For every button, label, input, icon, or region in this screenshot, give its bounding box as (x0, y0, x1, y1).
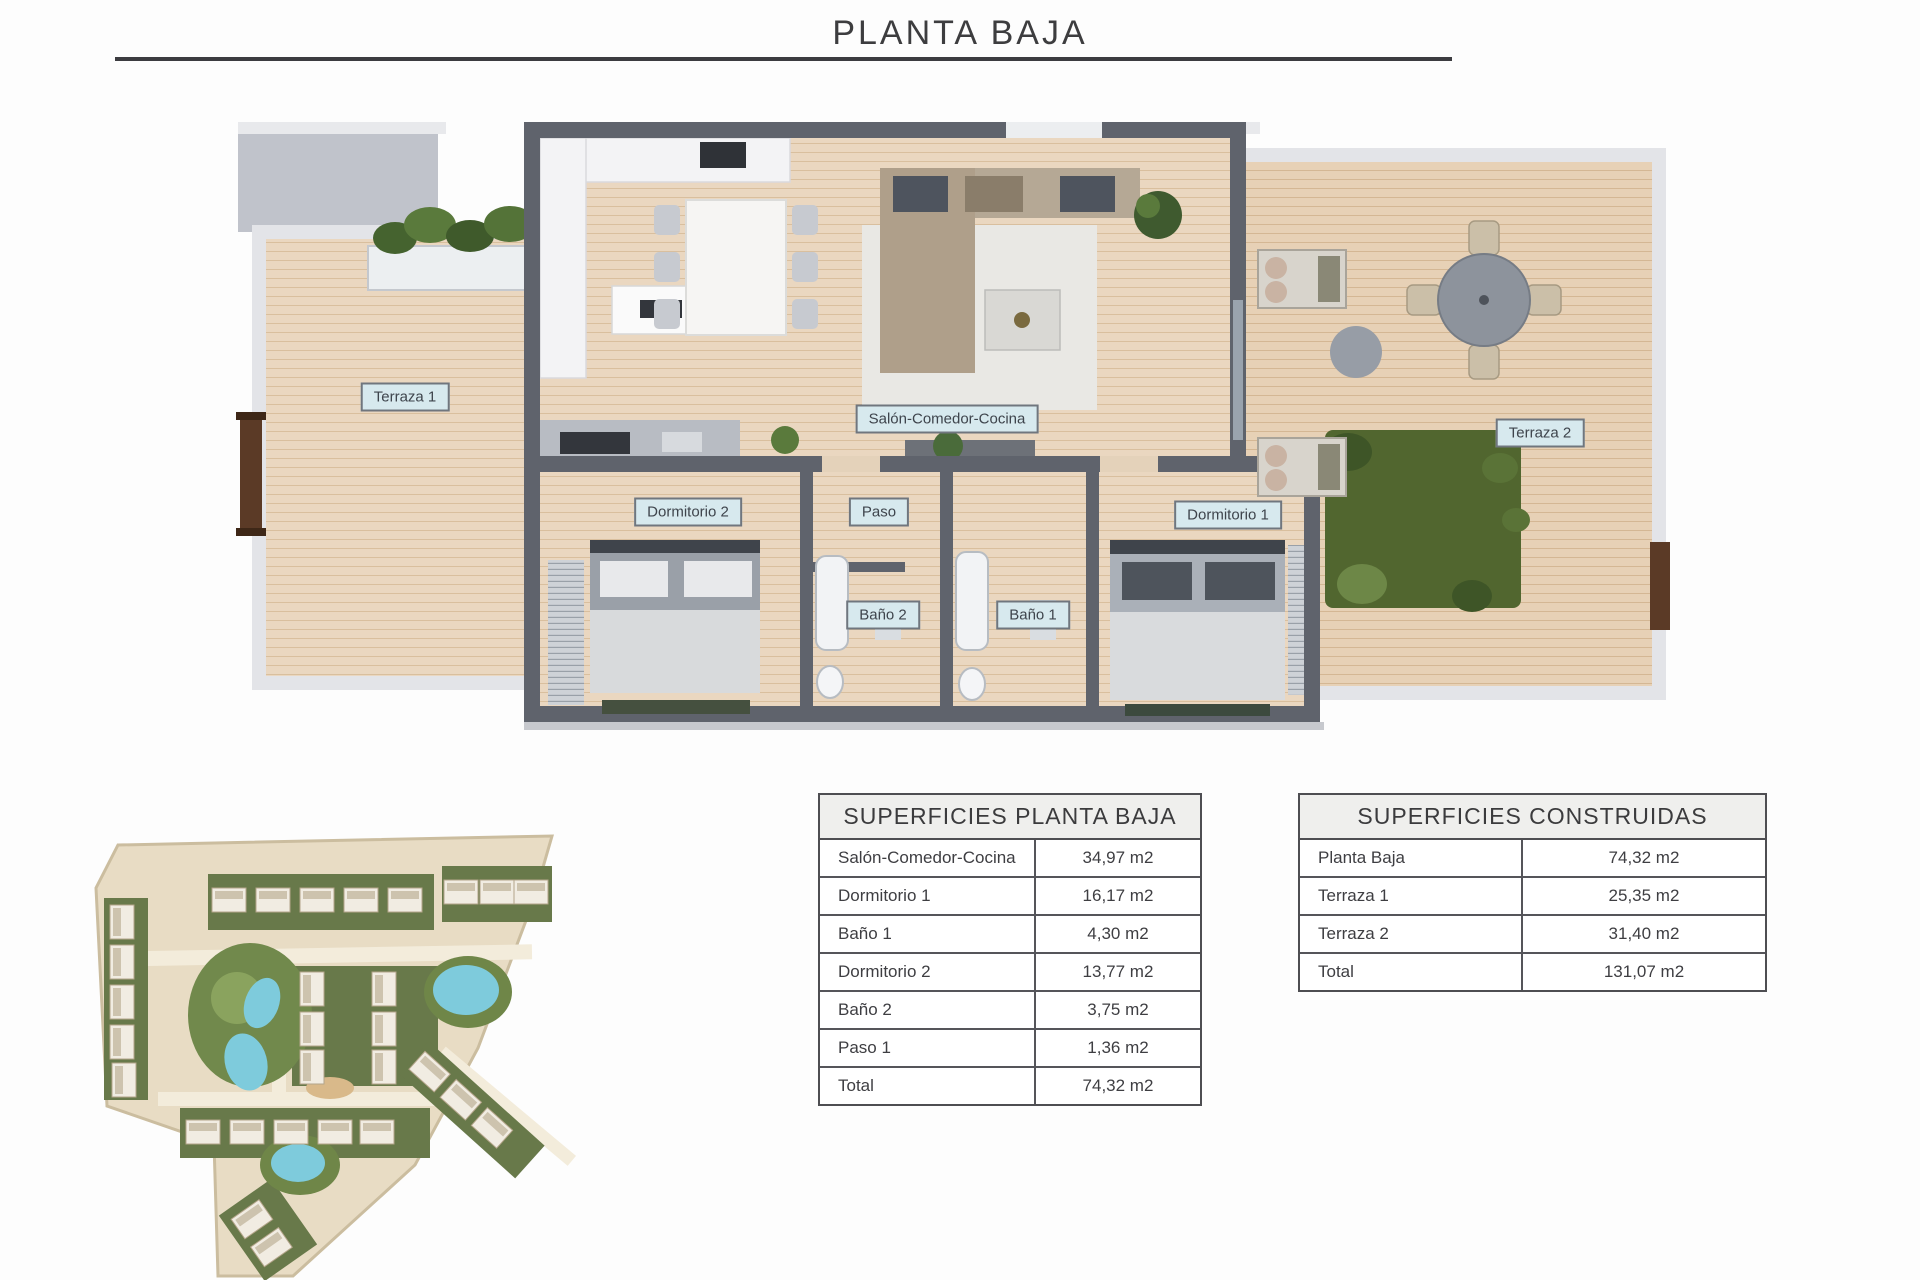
row-label: Terraza 1 (1300, 878, 1523, 914)
terraza-1-door (240, 418, 262, 530)
row-label: Planta Baja (1300, 840, 1523, 876)
terraza-2-door (1650, 542, 1670, 630)
sun-lounger-2 (1258, 438, 1346, 496)
row-label: Dormitorio 2 (820, 954, 1036, 990)
table-row: Paso 1 1,36 m2 (820, 1030, 1200, 1068)
room-label-salon: Salón-Comedor-Cocina (856, 405, 1039, 434)
table-row: Salón-Comedor-Cocina 34,97 m2 (820, 840, 1200, 878)
room-label-terraza-1: Terraza 1 (361, 383, 450, 412)
floor-plan-sheet: PLANTA BAJA (0, 0, 1920, 1280)
paso-door-gap (822, 456, 880, 472)
room-label-dormitorio-2: Dormitorio 2 (634, 498, 742, 527)
table-row: Terraza 2 31,40 m2 (1300, 916, 1765, 954)
table-row: Baño 2 3,75 m2 (820, 992, 1200, 1030)
dining-table (654, 200, 818, 335)
entrance-door-gap (1006, 122, 1102, 138)
row-value: 13,77 m2 (1036, 954, 1200, 990)
room-label-paso: Paso (849, 498, 909, 527)
row-value: 3,75 m2 (1036, 992, 1200, 1028)
room-label-dormitorio-1: Dormitorio 1 (1174, 501, 1282, 530)
title-underline (115, 57, 1452, 61)
table-row: Dormitorio 2 13,77 m2 (820, 954, 1200, 992)
row-label: Terraza 2 (1300, 916, 1523, 952)
row-value: 4,30 m2 (1036, 916, 1200, 952)
table-row: Baño 1 4,30 m2 (820, 916, 1200, 954)
round-side-table (1330, 326, 1382, 378)
page-title: PLANTA BAJA (0, 14, 1920, 53)
table-superficies-construidas: SUPERFICIES CONSTRUIDAS Planta Baja 74,3… (1298, 793, 1767, 992)
bed-dormitorio-1 (1110, 540, 1304, 716)
row-label: Baño 2 (820, 992, 1036, 1028)
room-label-bano-2: Baño 2 (846, 601, 920, 630)
table-row: Planta Baja 74,32 m2 (1300, 840, 1765, 878)
table-row: Total 131,07 m2 (1300, 954, 1765, 990)
table-header: SUPERFICIES CONSTRUIDAS (1300, 795, 1765, 840)
room-label-bano-1: Baño 1 (996, 601, 1070, 630)
table-superficies-planta-baja: SUPERFICIES PLANTA BAJA Salón-Comedor-Co… (818, 793, 1202, 1106)
row-value: 31,40 m2 (1523, 916, 1765, 952)
table-row: Total 74,32 m2 (820, 1068, 1200, 1104)
row-value: 25,35 m2 (1523, 878, 1765, 914)
row-value: 74,32 m2 (1523, 840, 1765, 876)
row-value: 16,17 m2 (1036, 878, 1200, 914)
table-row: Terraza 1 25,35 m2 (1300, 878, 1765, 916)
row-label: Total (820, 1068, 1036, 1104)
table-row: Dormitorio 1 16,17 m2 (820, 878, 1200, 916)
room-label-terraza-2: Terraza 2 (1496, 419, 1585, 448)
row-label: Salón-Comedor-Cocina (820, 840, 1036, 876)
row-value: 131,07 m2 (1523, 954, 1765, 990)
garden (1324, 430, 1530, 612)
row-value: 1,36 m2 (1036, 1030, 1200, 1066)
living-window (1233, 300, 1243, 440)
table-header: SUPERFICIES PLANTA BAJA (820, 795, 1200, 840)
row-value: 74,32 m2 (1036, 1068, 1200, 1104)
row-label: Dormitorio 1 (820, 878, 1036, 914)
sun-lounger-1 (1258, 250, 1346, 308)
row-value: 34,97 m2 (1036, 840, 1200, 876)
bed-dormitorio-2 (548, 540, 760, 714)
site-plan (60, 818, 580, 1280)
row-label: Paso 1 (820, 1030, 1036, 1066)
row-label: Baño 1 (820, 916, 1036, 952)
dormitorio-1-door-gap (1100, 456, 1158, 472)
row-label: Total (1300, 954, 1523, 990)
